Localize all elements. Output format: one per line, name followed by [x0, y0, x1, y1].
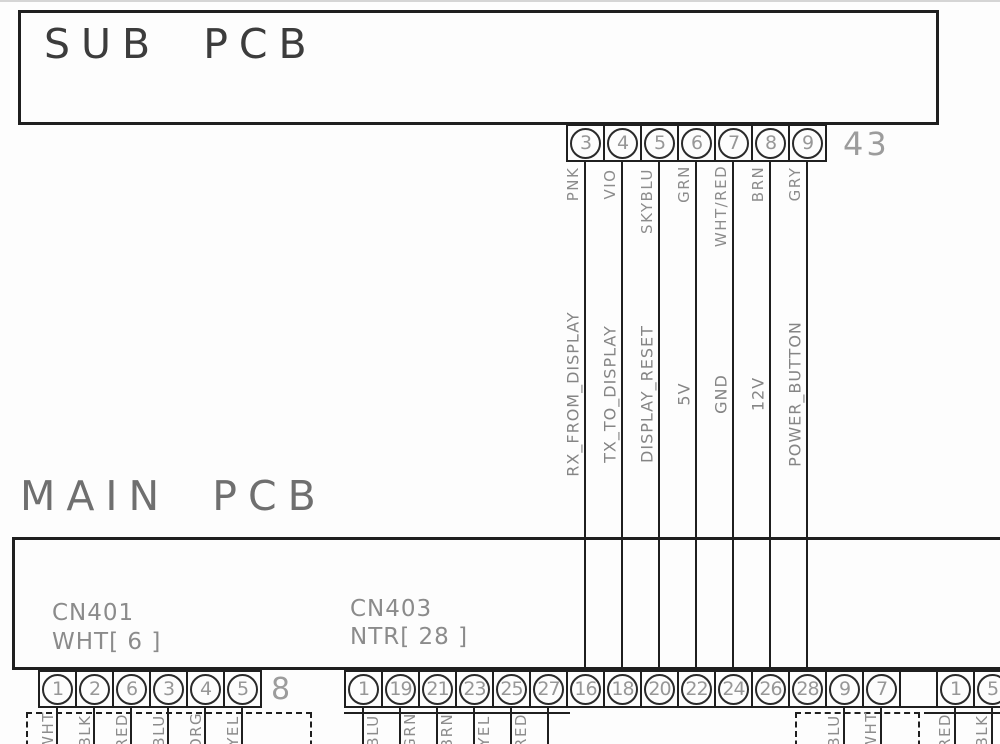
pin-circle: 19 [385, 674, 416, 705]
wire-color-label: BRN [749, 166, 767, 202]
scan-edge [0, 0, 1000, 2]
stub [991, 708, 993, 744]
right-pin-1: 1 [936, 670, 975, 708]
wire-color-label: YEL [475, 715, 493, 744]
wire-color-label: WHT/RED [712, 165, 730, 247]
cn403-pin-25: 25 [492, 670, 531, 708]
wire-power-button [806, 160, 808, 672]
wiring-diagram: SUB PCB MAIN PCB CN401 WHT[ 6 ] CN403 NT… [0, 0, 1000, 744]
pin-circle: 2 [79, 674, 110, 705]
wire-color-label: BRN [438, 713, 456, 744]
pin-circle: 21 [422, 674, 453, 705]
sub-pin-3: 3 [566, 124, 605, 162]
cn403-pin-9: 9 [825, 670, 864, 708]
cn401-name: CN401 [52, 600, 134, 626]
pin-circle: 7 [718, 128, 749, 159]
signal-label: RX_FROM_DISPLAY [564, 311, 583, 476]
stub [880, 708, 882, 744]
wire-color-label: GRN [401, 712, 419, 744]
stub [547, 708, 549, 744]
pin-circle: 6 [681, 128, 712, 159]
wire-color-label: GRN [675, 165, 693, 203]
pin-circle: 9 [792, 128, 823, 159]
cn403-pin-18: 18 [603, 670, 642, 708]
wire-color-label: BLU [825, 714, 843, 744]
cn403-pin-27: 27 [529, 670, 568, 708]
cn401-ref: 8 [271, 672, 293, 707]
wire-color-label: SKYBLU [638, 168, 656, 234]
sub-pin-8: 8 [751, 124, 790, 162]
wire-display-reset [658, 160, 660, 672]
cn403-pin-23: 23 [455, 670, 494, 708]
stub [843, 708, 845, 744]
cn403-pin-21: 21 [418, 670, 457, 708]
pin-circle: 5 [227, 674, 258, 705]
wire-color-label: RED [512, 713, 530, 744]
pin-circle: 1 [940, 674, 971, 705]
pin-circle: 27 [533, 674, 564, 705]
sub-pin-9: 9 [788, 124, 827, 162]
wire-color-label: YEL [224, 715, 242, 744]
pin-circle: 9 [829, 674, 860, 705]
cn401-cable-bundle [26, 712, 312, 744]
sub-pcb-title: SUB PCB [44, 20, 318, 68]
pin-circle: 4 [607, 128, 638, 159]
pin-circle: 5 [977, 674, 1000, 705]
pin-circle: 3 [570, 128, 601, 159]
wire-color-label: RED [936, 713, 954, 744]
signal-label: 12V [749, 377, 768, 411]
cn403-pin-16: 16 [566, 670, 605, 708]
pin-circle: 6 [116, 674, 147, 705]
sub-pin-4: 4 [603, 124, 642, 162]
pin-circle: 4 [190, 674, 221, 705]
pin-circle: 22 [681, 674, 712, 705]
cn401-pin-4: 4 [186, 670, 225, 708]
cn403-pin-7: 7 [862, 670, 901, 708]
wire-color-label: BLU [364, 714, 382, 744]
pin-circle: 25 [496, 674, 527, 705]
wire-color-label: BLU [150, 714, 168, 744]
wire-gnd [732, 160, 734, 672]
cn401-spec: WHT[ 6 ] [52, 629, 161, 655]
wire-color-label: GRY [786, 167, 804, 202]
wire-color-label: ORG [187, 712, 205, 744]
pin-circle: 16 [570, 674, 601, 705]
cn403-name: CN403 [350, 596, 432, 622]
signal-label: POWER_BUTTON [786, 321, 805, 467]
cn401-pin-1: 1 [38, 670, 77, 708]
right-pin-5: 5 [973, 670, 1000, 708]
wire-color-label: WHT [39, 711, 57, 744]
sub-connector-ref: 43 [843, 125, 890, 163]
wire-color-label: BLK [76, 715, 94, 744]
cn403-pin-24: 24 [714, 670, 753, 708]
wire-color-label: PNK [564, 167, 582, 202]
cn403-pin-22: 22 [677, 670, 716, 708]
pin-circle: 1 [42, 674, 73, 705]
wire-12v [769, 160, 771, 672]
cn403-pin-28: 28 [788, 670, 827, 708]
aux-cable-bundle [795, 712, 920, 744]
wire-color-label: WHT [862, 711, 880, 744]
pin-circle: 3 [153, 674, 184, 705]
signal-label: GND [712, 374, 731, 414]
main-pcb-title: MAIN PCB [20, 472, 327, 520]
sub-pin-6: 6 [677, 124, 716, 162]
sub-pin-7: 7 [714, 124, 753, 162]
cn403-pin-26: 26 [751, 670, 790, 708]
cn403-spec: NTR[ 28 ] [350, 624, 468, 650]
cn403-pin-19: 19 [381, 670, 420, 708]
wire-color-label: RED [113, 713, 131, 744]
cn401-pin-6: 6 [112, 670, 151, 708]
wire-tx-to-display [621, 160, 623, 672]
sub-pin-5: 5 [640, 124, 679, 162]
signal-label: 5V [675, 382, 694, 405]
pin-circle: 18 [607, 674, 638, 705]
pin-circle: 5 [644, 128, 675, 159]
stub [954, 708, 956, 744]
cn403-pin-20: 20 [640, 670, 679, 708]
pin-circle: 8 [755, 128, 786, 159]
pin-circle: 28 [792, 674, 823, 705]
pin-circle: 26 [755, 674, 786, 705]
cn401-pin-2: 2 [75, 670, 114, 708]
pin-circle: 24 [718, 674, 749, 705]
pin-circle: 20 [644, 674, 675, 705]
connector-spacer-cell [899, 670, 938, 708]
signal-label: TX_TO_DISPLAY [601, 325, 620, 463]
wire-rx-from-display [584, 160, 586, 672]
pin-circle: 23 [459, 674, 490, 705]
pin-circle: 7 [866, 674, 897, 705]
cn403-pin-1: 1 [344, 670, 383, 708]
cn401-pin-5: 5 [223, 670, 262, 708]
pin-circle: 1 [348, 674, 379, 705]
cn401-pin-3: 3 [149, 670, 188, 708]
wire-color-label: BLK [973, 715, 991, 744]
wire-color-label: VIO [601, 169, 619, 200]
signal-label: DISPLAY_RESET [638, 325, 657, 463]
wire-5v [695, 160, 697, 672]
